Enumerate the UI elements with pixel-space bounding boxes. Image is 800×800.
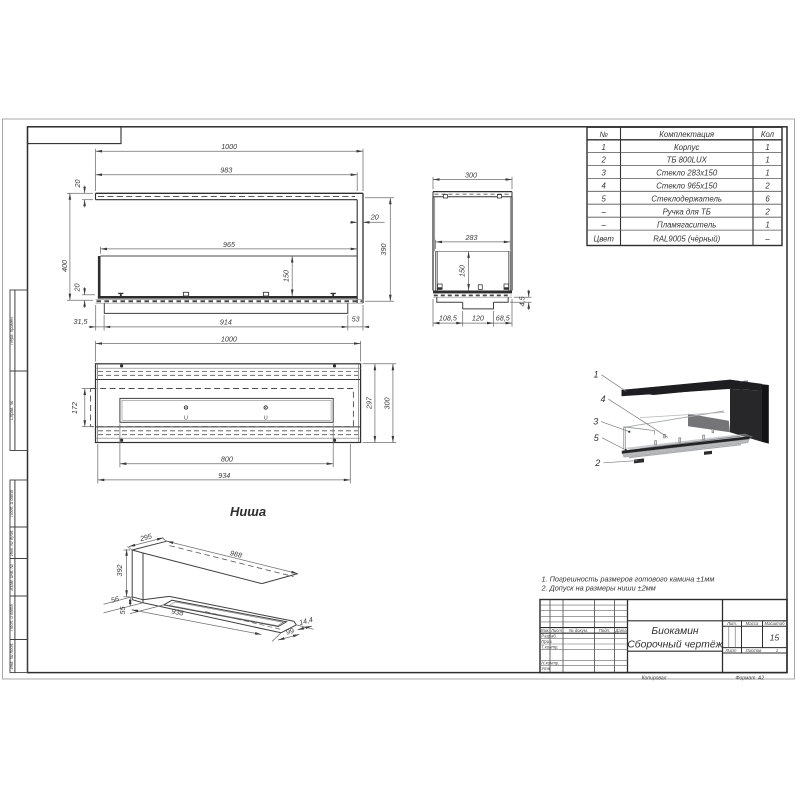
svg-text:Подп. и дата: Подп. и дата: [9, 604, 14, 632]
svg-text:31,5: 31,5: [74, 317, 89, 326]
svg-text:3: 3: [593, 417, 598, 427]
svg-text:300: 300: [465, 171, 477, 180]
svg-text:Инв. № подл.: Инв. № подл.: [9, 643, 14, 670]
svg-text:Формат: Формат: [736, 676, 756, 682]
svg-text:2. Допуск на размеры ниши ±2мм: 2. Допуск на размеры ниши ±2мм: [541, 583, 656, 592]
svg-text:1: 1: [765, 143, 769, 152]
svg-text:Утв.: Утв.: [541, 666, 551, 671]
svg-text:914: 914: [220, 317, 232, 326]
svg-text:№ докум.: № докум.: [569, 628, 588, 633]
svg-text:800: 800: [221, 455, 233, 464]
svg-text:ТБ 800LUX: ТБ 800LUX: [667, 156, 708, 165]
svg-text:RAL9005 (чёрный): RAL9005 (чёрный): [653, 235, 720, 244]
svg-text:1: 1: [765, 220, 769, 229]
svg-text:Изм.: Изм.: [540, 628, 549, 633]
svg-text:172: 172: [70, 402, 79, 414]
svg-text:Пров.: Пров.: [541, 639, 552, 644]
svg-text:Ручка для ТБ: Ручка для ТБ: [663, 207, 711, 216]
svg-text:Листов: Листов: [745, 648, 762, 653]
svg-text:Справ. №: Справ. №: [9, 400, 14, 420]
svg-text:Подп. и дата: Подп. и дата: [9, 489, 14, 517]
svg-text:А2: А2: [757, 676, 764, 682]
svg-text:283: 283: [465, 233, 478, 242]
svg-text:1: 1: [602, 143, 606, 152]
svg-text:Лист: Лист: [724, 648, 736, 653]
svg-text:–: –: [764, 235, 770, 244]
svg-text:Инв. № дубл.: Инв. № дубл.: [9, 530, 14, 556]
svg-text:20: 20: [73, 284, 82, 293]
svg-text:150: 150: [458, 265, 467, 277]
svg-text:Пламягаситель: Пламягаситель: [657, 220, 716, 229]
svg-text:Взам. инв. №: Взам. инв. №: [9, 564, 14, 591]
svg-text:297: 297: [364, 396, 373, 410]
svg-text:Корпус: Корпус: [674, 143, 699, 152]
svg-text:Ниша: Ниша: [230, 504, 266, 519]
svg-text:3: 3: [602, 169, 607, 178]
svg-text:934: 934: [218, 471, 230, 480]
svg-text:2: 2: [594, 458, 600, 468]
svg-text:Масштаб: Масштаб: [764, 621, 785, 626]
svg-text:1000: 1000: [221, 335, 237, 344]
svg-text:400: 400: [60, 260, 69, 272]
svg-text:68,5: 68,5: [496, 314, 511, 323]
svg-text:4,5: 4,5: [517, 296, 526, 307]
svg-text:6: 6: [765, 194, 770, 203]
svg-text:Стекло 965х150: Стекло 965х150: [656, 182, 718, 191]
svg-text:Лист: Лист: [550, 628, 562, 633]
svg-text:Сборочный чертёж: Сборочный чертёж: [627, 639, 723, 651]
svg-text:Копировал: Копировал: [642, 676, 667, 682]
svg-text:20: 20: [370, 212, 379, 221]
svg-text:983: 983: [220, 166, 232, 175]
svg-text:390: 390: [379, 244, 388, 256]
svg-text:1: 1: [765, 169, 769, 178]
svg-text:Подп.: Подп.: [599, 628, 610, 633]
svg-text:2: 2: [764, 207, 770, 216]
svg-text:Разраб.: Разраб.: [541, 634, 557, 639]
svg-text:Цвет: Цвет: [594, 235, 615, 244]
svg-text:120: 120: [472, 314, 484, 323]
svg-text:Стеклодержатель: Стеклодержатель: [651, 194, 722, 203]
svg-text:150: 150: [281, 270, 290, 282]
svg-text:108,5: 108,5: [439, 314, 458, 323]
svg-text:1. Погрешность размеров готово: 1. Погрешность размеров готового камина …: [542, 575, 715, 584]
svg-text:392: 392: [115, 565, 124, 577]
svg-text:1: 1: [594, 370, 599, 380]
svg-text:Масса: Масса: [746, 621, 759, 626]
svg-text:55: 55: [118, 606, 127, 615]
svg-text:Перв. примен.: Перв. примен.: [9, 316, 14, 345]
svg-text:Комплектация: Комплектация: [659, 130, 715, 139]
svg-text:U: U: [184, 416, 188, 422]
svg-text:Лит.: Лит.: [726, 621, 737, 626]
svg-text:№: №: [599, 130, 607, 139]
svg-text:5: 5: [602, 194, 607, 203]
svg-text:20: 20: [73, 180, 82, 189]
svg-text:15: 15: [770, 633, 780, 643]
svg-text:–: –: [601, 220, 607, 229]
svg-text:2: 2: [764, 182, 770, 191]
svg-text:4: 4: [601, 394, 606, 404]
svg-text:Кол: Кол: [761, 130, 775, 139]
svg-text:Н.контр.: Н.контр.: [541, 661, 559, 666]
svg-text:1: 1: [765, 156, 769, 165]
svg-text:Биокамин: Биокамин: [651, 626, 699, 637]
svg-text:4: 4: [602, 182, 607, 191]
svg-text:Стекло 283х150: Стекло 283х150: [656, 169, 718, 178]
svg-text:53: 53: [352, 315, 360, 324]
svg-text:2: 2: [601, 156, 607, 165]
svg-text:–: –: [601, 207, 607, 216]
svg-text:965: 965: [223, 240, 236, 249]
svg-text:300: 300: [382, 398, 391, 410]
svg-text:Т.контр.: Т.контр.: [541, 644, 558, 649]
svg-text:U: U: [264, 416, 268, 422]
svg-text:1000: 1000: [221, 142, 237, 151]
svg-text:Дата: Дата: [614, 628, 627, 633]
